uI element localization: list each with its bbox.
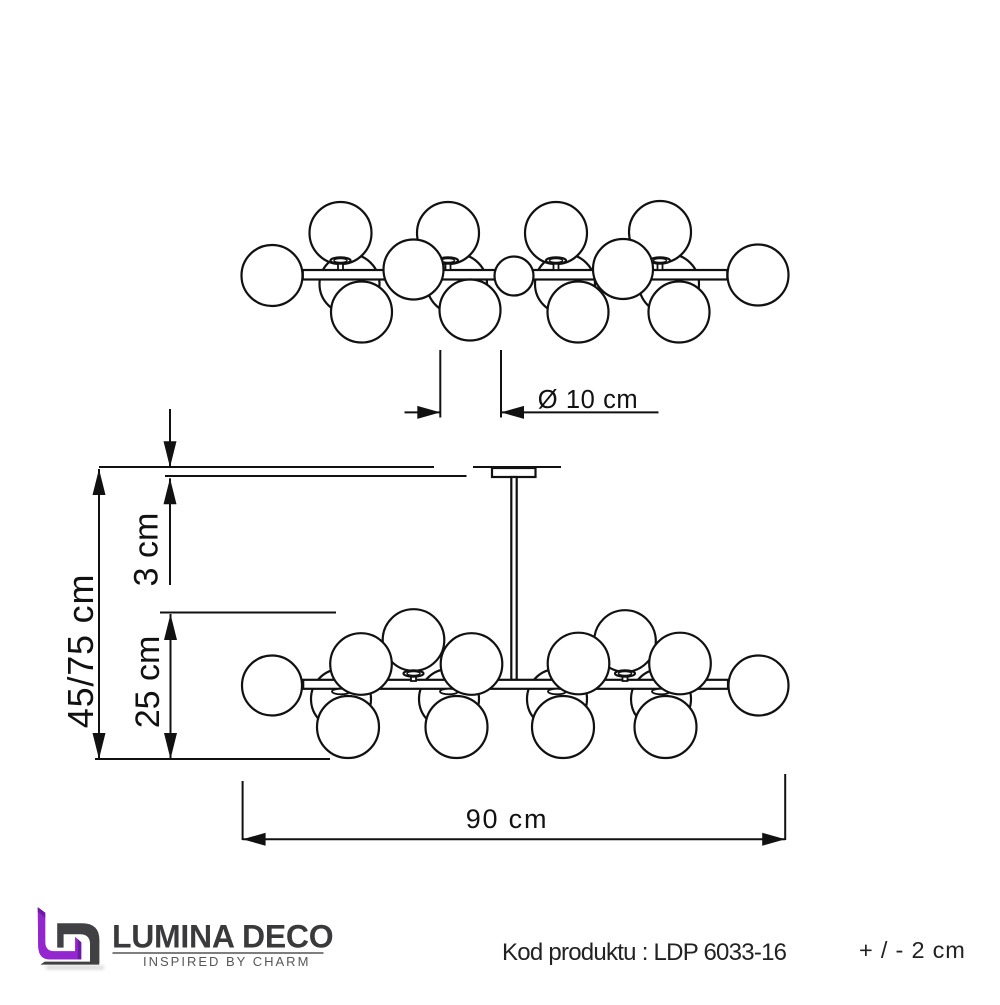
svg-text:Kod produktu : LDP 6033-16: Kod produktu : LDP 6033-16: [502, 939, 787, 966]
svg-text:+ / - 2 cm: + / - 2 cm: [859, 937, 966, 963]
svg-text:45/75 cm: 45/75 cm: [60, 574, 101, 728]
svg-text:LUMINA DECO: LUMINA DECO: [112, 919, 333, 955]
svg-text:3 cm: 3 cm: [128, 513, 166, 587]
svg-text:25 cm: 25 cm: [129, 636, 167, 729]
svg-text:Ø 10 cm: Ø 10 cm: [538, 386, 639, 414]
svg-text:INSPIRED BY CHARM: INSPIRED BY CHARM: [143, 954, 310, 969]
svg-text:90 cm: 90 cm: [466, 804, 549, 834]
